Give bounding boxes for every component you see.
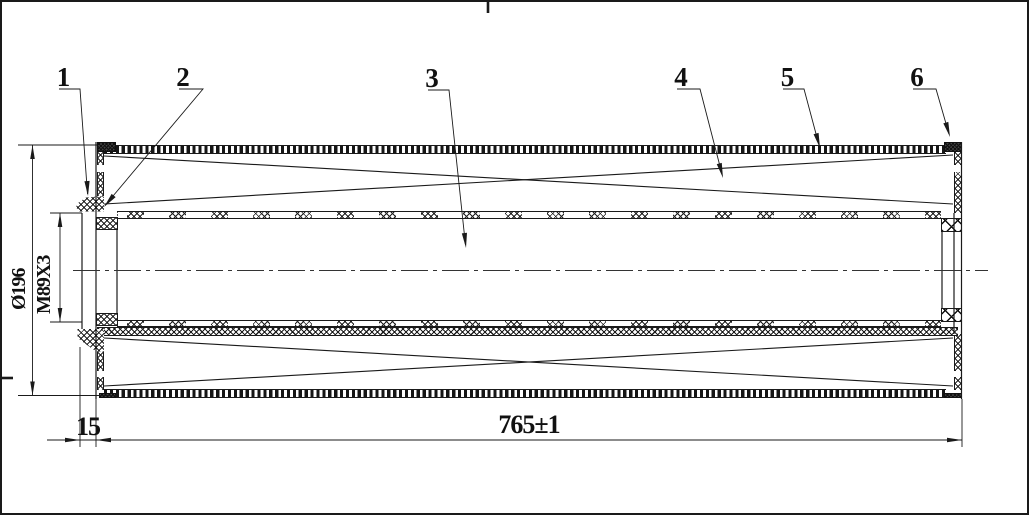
callout-leaders — [59, 89, 949, 245]
drawing-sheet: 1 2 3 4 5 6 Ø196 M89X3 15 765±1 — [0, 0, 1029, 515]
dimension-lines — [18, 145, 962, 447]
callout-arrowheads — [84, 122, 952, 248]
drawing-linework — [0, 0, 1029, 515]
sheet-center-ticks — [0, 0, 488, 378]
dimension-arrows — [30, 145, 962, 442]
